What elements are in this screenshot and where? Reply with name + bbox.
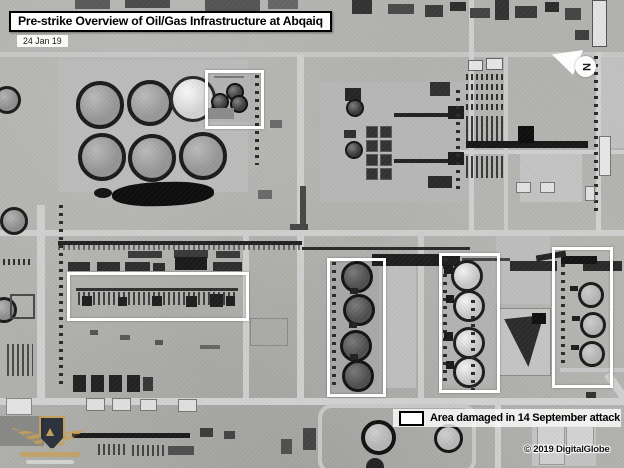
watermark-wing-left	[11, 424, 43, 451]
north-label: N	[579, 63, 591, 71]
watermark-logo	[10, 410, 90, 466]
watermark-text-line	[26, 460, 74, 464]
legend-swatch	[399, 411, 424, 426]
copyright-credit: © 2019 DigitalGlobe	[524, 444, 610, 455]
annotation-overlay: Pre-strike Overview of Oil/Gas Infrastru…	[0, 0, 624, 468]
damage-area-box	[327, 258, 386, 397]
damage-area-box	[439, 253, 500, 393]
watermark-text-line	[20, 452, 80, 457]
damage-area-box	[552, 247, 613, 388]
legend-label: Area damaged in 14 September attack	[430, 412, 620, 424]
satellite-screenshot: Pre-strike Overview of Oil/Gas Infrastru…	[0, 0, 624, 468]
image-date-label: 24 Jan 19	[17, 35, 68, 47]
north-arrow-icon: N	[552, 48, 600, 82]
north-arrow-circle: N	[575, 56, 596, 77]
damage-area-box	[205, 70, 264, 129]
damage-area-box	[67, 272, 249, 321]
legend: Area damaged in 14 September attack	[393, 409, 621, 427]
map-title: Pre-strike Overview of Oil/Gas Infrastru…	[9, 11, 332, 32]
